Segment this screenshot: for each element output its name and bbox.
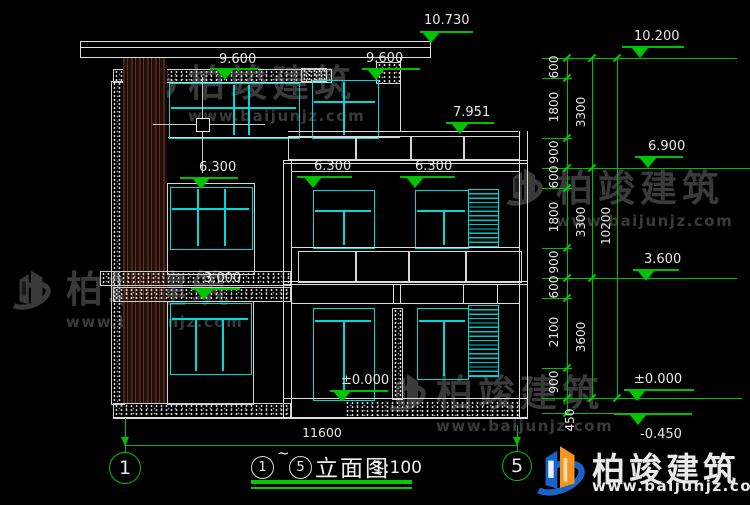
line <box>80 47 431 48</box>
brand-logo-icon <box>8 262 54 312</box>
dim-arrow-icon <box>513 437 521 446</box>
line <box>283 160 284 417</box>
brand-url: www.baijunjz.com <box>592 477 750 495</box>
line <box>291 160 292 417</box>
brand-logo-icon-color <box>531 436 589 498</box>
elevation-label-right-zero: ±0.000 <box>634 372 682 387</box>
window-frame <box>170 303 252 375</box>
elevation-label-right-neg: -0.450 <box>640 427 682 442</box>
window-mullion <box>224 189 226 246</box>
line <box>497 284 498 303</box>
watermark-url: www.baijunjz.com <box>436 417 613 435</box>
line <box>291 303 520 304</box>
dim-3600: 3600 <box>574 319 588 355</box>
dim-600: 600 <box>547 49 561 85</box>
line <box>527 131 528 417</box>
panel <box>410 136 465 160</box>
line <box>80 41 81 58</box>
cad-drawing-canvas: 柏竣建筑 www.baijunjz.com 柏竣建筑 www.baijunjz.… <box>0 0 750 505</box>
panel <box>355 136 412 160</box>
line <box>393 284 394 303</box>
dim-11600: 11600 <box>300 425 344 440</box>
dim-10200: 10200 <box>599 209 613 245</box>
elevation-label-right-36: 3.600 <box>644 252 681 267</box>
dim-1800: 1800 <box>547 89 561 125</box>
window-mullion <box>172 208 249 210</box>
line <box>80 41 431 42</box>
window-mullion <box>343 212 345 245</box>
axis-bubble-5: 5 <box>502 451 532 481</box>
line <box>283 398 528 399</box>
title-axis-end: 5 <box>289 456 312 479</box>
louver-shutter <box>468 189 499 248</box>
panel <box>298 251 357 283</box>
line <box>288 131 518 132</box>
panel <box>465 251 522 283</box>
elevation-label-2f-mid: 6.300 <box>314 159 351 174</box>
dim-line <box>567 58 568 413</box>
line <box>430 41 431 58</box>
dim-3300: 3300 <box>574 94 588 130</box>
drawing-scale: 1:100 <box>373 458 422 478</box>
louver-shutter <box>468 305 499 377</box>
window-frame <box>415 190 469 249</box>
dim-2100: 2100 <box>547 314 561 350</box>
elevation-label-ground: ±0.000 <box>341 373 389 388</box>
line <box>400 284 401 303</box>
dim-line <box>617 58 618 398</box>
window-mullion <box>443 322 445 376</box>
window-mullion <box>171 107 296 109</box>
window-mullion <box>314 101 375 103</box>
title-separator: ~ <box>277 444 290 462</box>
axis-bubble-1: 1 <box>109 452 141 484</box>
elevation-label-2f-left: 6.300 <box>199 160 236 175</box>
dim-600: 600 <box>547 269 561 305</box>
window-mullion <box>419 320 465 322</box>
dim-450: 450 <box>563 402 577 438</box>
line <box>283 281 528 282</box>
elevation-label-right-top: 10.200 <box>634 29 680 44</box>
window-mullion <box>248 85 250 135</box>
window-mullion <box>343 82 345 135</box>
textured-band <box>392 308 403 400</box>
panel <box>288 136 357 160</box>
window-frame <box>170 187 253 250</box>
line <box>291 247 520 248</box>
elevation-label-3f-left: 9.600 <box>219 52 256 67</box>
dim-3300: 3300 <box>574 204 588 240</box>
dim-900: 900 <box>547 364 561 400</box>
panel <box>408 251 467 283</box>
line <box>463 284 464 303</box>
elevation-label-2f-right: 6.300 <box>415 159 452 174</box>
textured-band <box>100 271 291 286</box>
elevation-label-roof: 10.730 <box>424 13 470 28</box>
panel <box>463 136 520 160</box>
dim-line <box>592 58 593 398</box>
elevation-label-1f: 3.000 <box>204 271 241 286</box>
dim-1800: 1800 <box>547 199 561 235</box>
title-underline-thin <box>251 487 412 489</box>
cad-pickbox-cursor <box>196 118 210 132</box>
elevation-label-3f-right: 9.600 <box>366 51 403 66</box>
window-mullion <box>233 85 235 135</box>
window-mullion <box>172 318 248 320</box>
panel <box>355 251 410 283</box>
window-mullion <box>443 212 445 245</box>
window-mullion <box>197 189 199 246</box>
title-underline <box>251 480 412 484</box>
elevation-label-right-69: 6.900 <box>648 139 685 154</box>
window-mullion <box>417 210 465 212</box>
dim-arrow-icon <box>121 437 129 446</box>
title-axis-start: 1 <box>251 456 274 479</box>
line <box>113 417 528 419</box>
brand-logo-icon <box>502 160 546 208</box>
line <box>283 284 528 285</box>
window-mullion <box>222 320 224 371</box>
window-mullion <box>195 320 197 371</box>
dim-line <box>542 168 750 169</box>
dim-line <box>125 445 517 446</box>
wood-cladding-column <box>123 58 167 404</box>
dim-line <box>125 418 126 452</box>
ground-texture <box>345 401 519 416</box>
dim-600: 600 <box>547 159 561 195</box>
elevation-label-terrace: 7.951 <box>453 105 490 120</box>
dim-line <box>542 58 737 59</box>
